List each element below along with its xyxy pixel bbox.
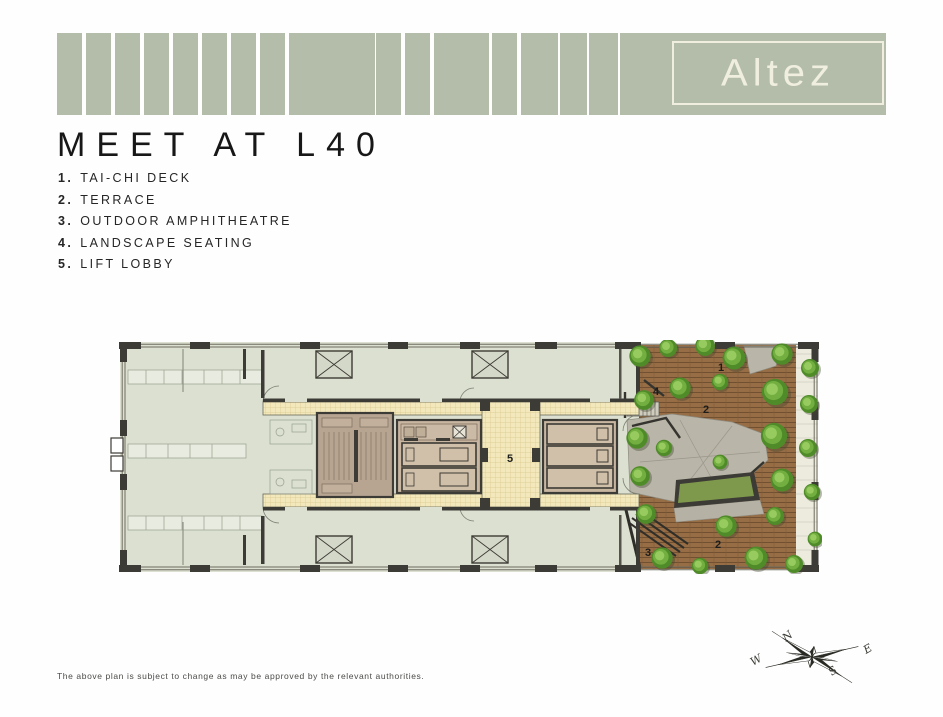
brand-logo: Altez — [672, 41, 884, 105]
legend-label: TAI-CHI DECK — [80, 171, 191, 185]
legend-label: LIFT LOBBY — [80, 257, 175, 271]
lift-bank-left — [397, 420, 481, 493]
plan-marker-5: 5 — [507, 453, 513, 465]
plan-marker-4: 4 — [653, 386, 660, 398]
brand-logo-text: Altez — [721, 54, 835, 92]
banner-stripe-wide — [434, 33, 489, 115]
plan-marker-1: 1 — [718, 362, 724, 374]
plan-legend: 1.TAI-CHI DECK 2.TERRACE 3.OUTDOOR AMPHI… — [58, 171, 292, 279]
legend-item: 4.LANDSCAPE SEATING — [58, 236, 292, 258]
chute-box — [453, 426, 466, 438]
legend-number: 1. — [58, 171, 73, 185]
stair-core — [317, 413, 393, 497]
compass-letter-w: W — [748, 651, 766, 669]
banner-stripe-wide — [289, 33, 375, 115]
legend-label: TERRACE — [80, 193, 157, 207]
legend-item: 1.TAI-CHI DECK — [58, 171, 292, 193]
header-banner: Altez — [57, 33, 886, 115]
disclaimer-text: The above plan is subject to change as m… — [57, 671, 424, 681]
legend-item: 5.LIFT LOBBY — [58, 257, 292, 279]
compass-letter-n: N — [779, 628, 796, 645]
compass-rose: N E W S — [748, 626, 883, 693]
plan-marker-2-lower: 2 — [715, 539, 721, 551]
legend-item: 2.TERRACE — [58, 193, 292, 215]
plan-marker-2-upper: 2 — [703, 404, 709, 416]
brochure-page: Altez MEET AT L40 1.TAI-CHI DECK 2.TERRA… — [0, 0, 943, 717]
legend-number: 3. — [58, 214, 73, 228]
page-title: MEET AT L40 — [57, 126, 386, 165]
compass-letter-s: S — [826, 663, 840, 678]
lift-bank-right — [543, 420, 617, 493]
legend-item: 3.OUTDOOR AMPHITHEATRE — [58, 214, 292, 236]
legend-label: OUTDOOR AMPHITHEATRE — [80, 214, 292, 228]
compass: N E W S — [748, 626, 883, 696]
plan-marker-3: 3 — [645, 547, 651, 559]
legend-number: 2. — [58, 193, 73, 207]
legend-number: 5. — [58, 257, 73, 271]
floor-plan-svg: 1 4 2 5 3 2 — [108, 340, 822, 574]
compass-letter-e: E — [860, 641, 874, 657]
legend-number: 4. — [58, 236, 73, 250]
banner-solid-block: Altez — [537, 33, 886, 115]
legend-label: LANDSCAPE SEATING — [80, 236, 254, 250]
